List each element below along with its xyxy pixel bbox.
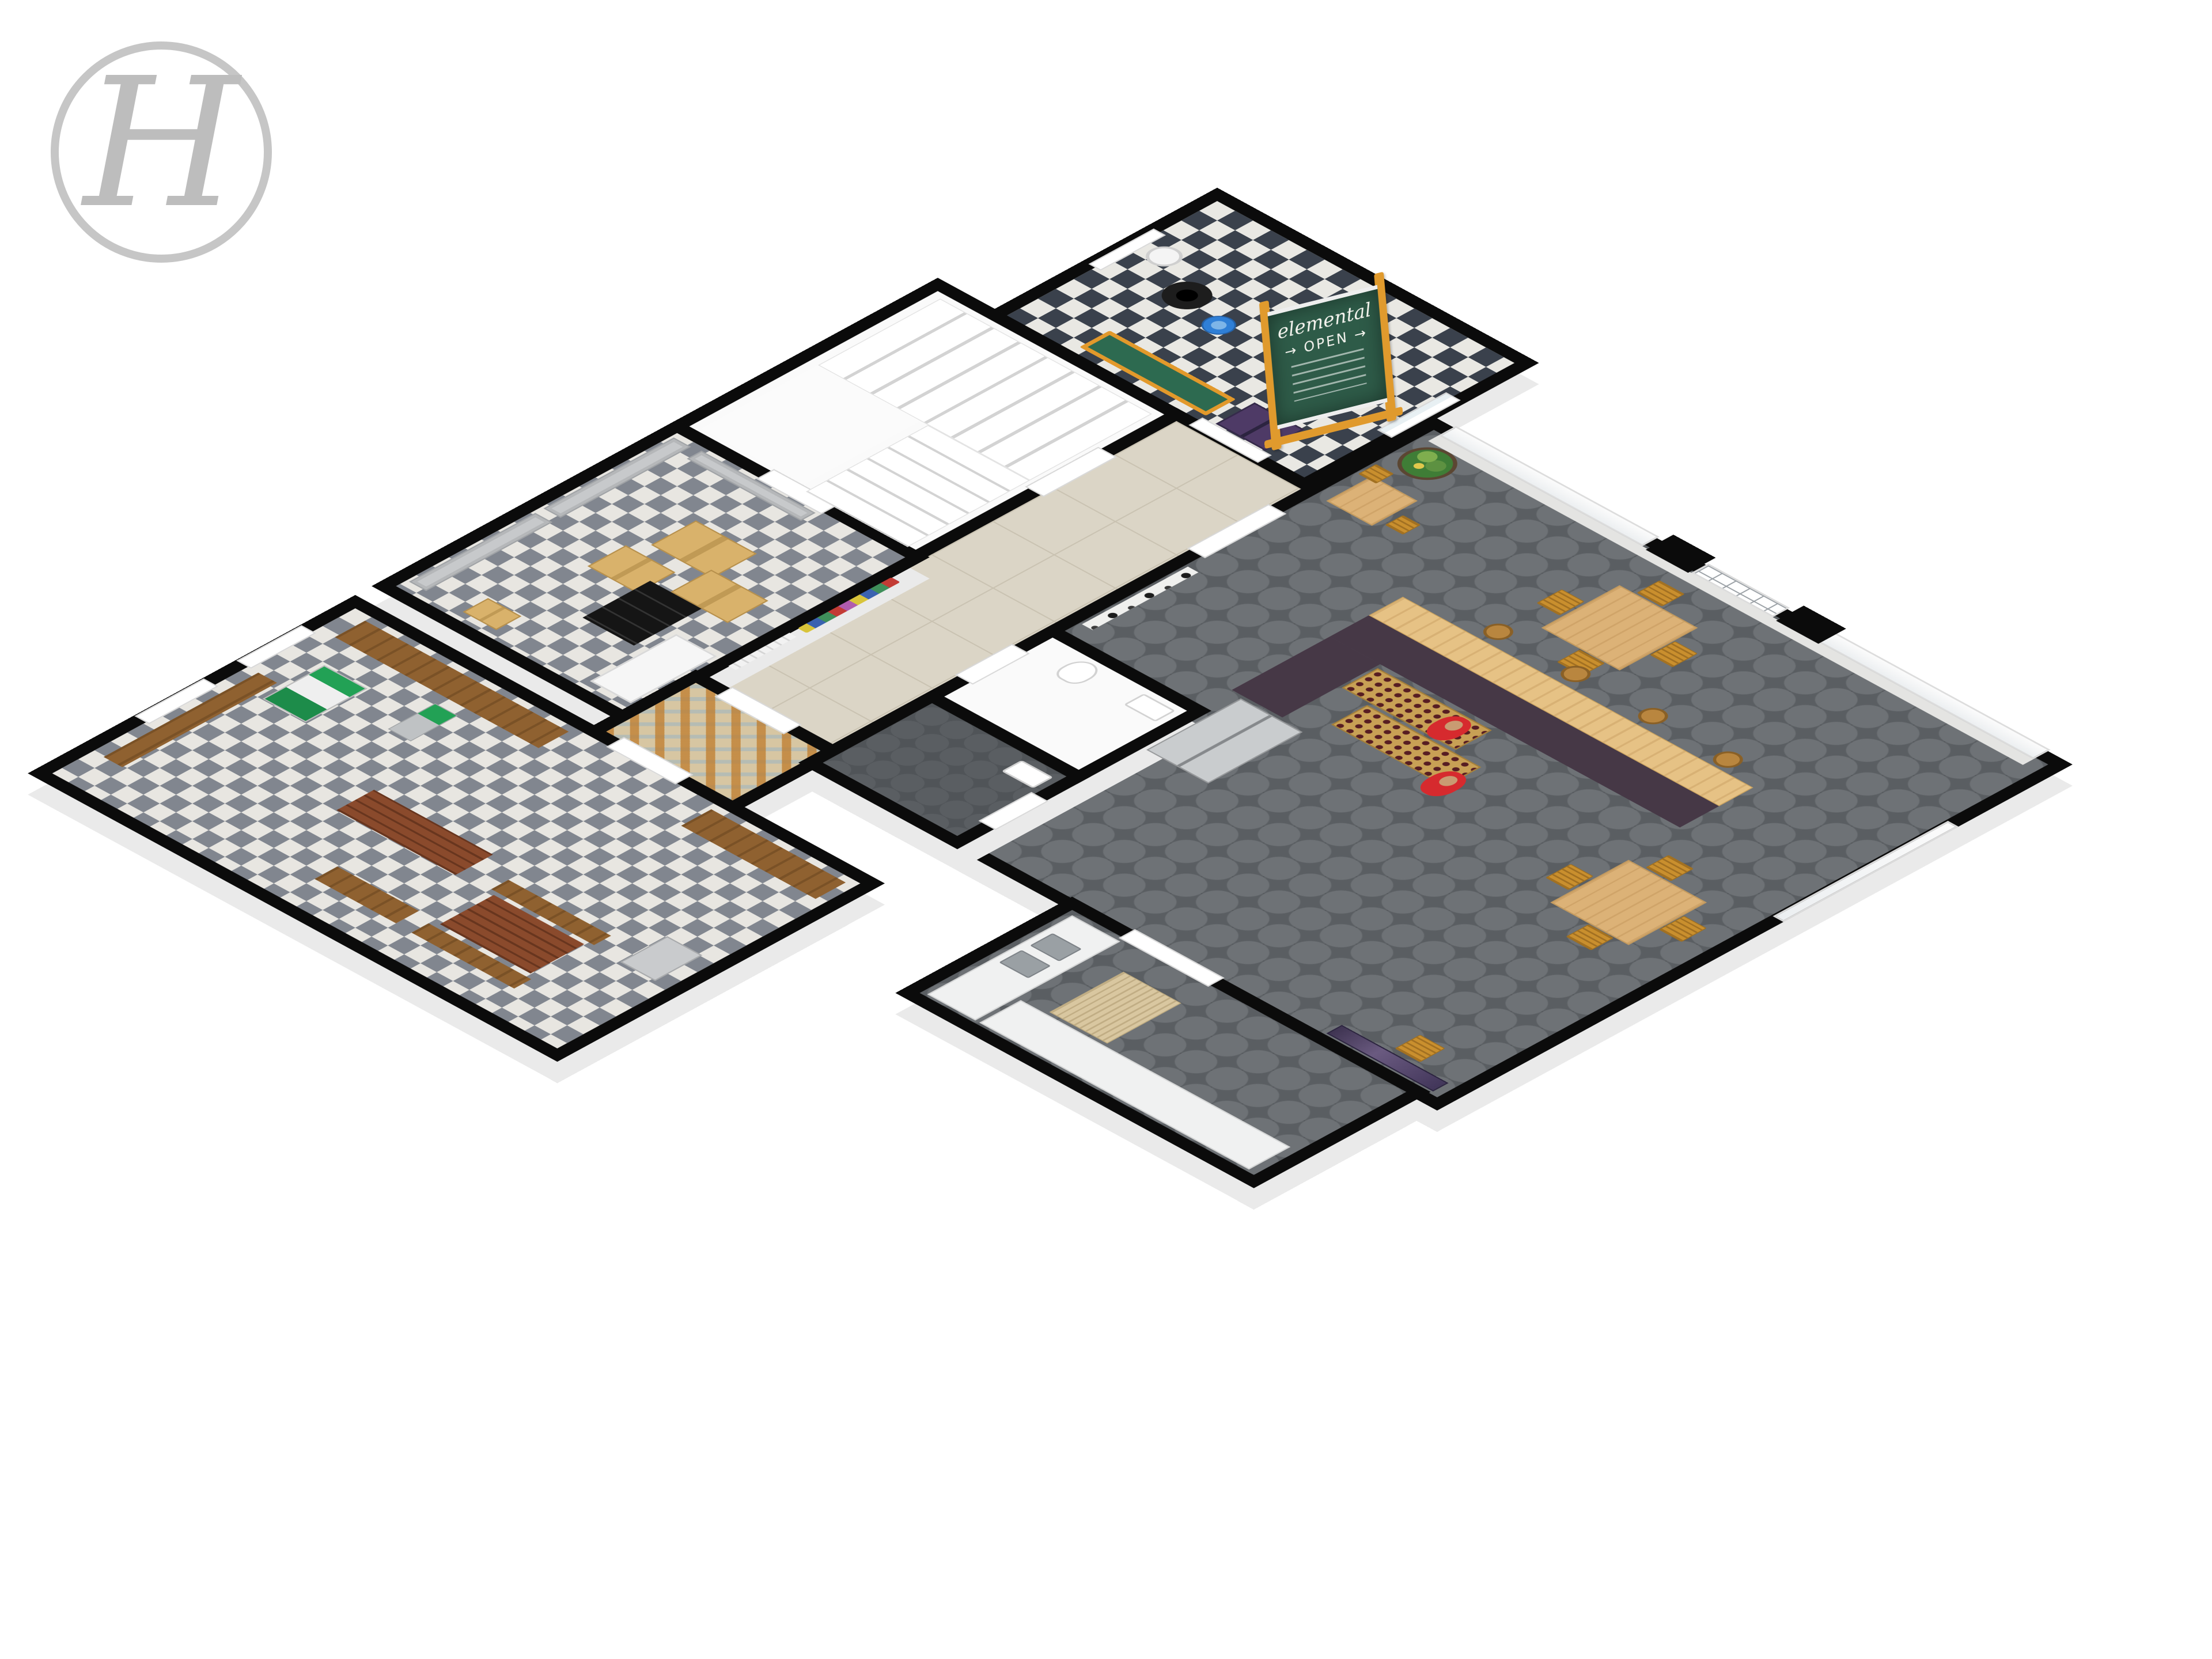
brand-logo-letter: H xyxy=(84,55,239,233)
sign-board: elemental → OPEN → xyxy=(1267,285,1387,430)
chalkboard-sign: elemental → OPEN → xyxy=(1259,272,1397,451)
brand-logo: H xyxy=(51,41,272,263)
page: { "logo": { "letter": "H", "ring_color":… xyxy=(0,0,2212,1659)
